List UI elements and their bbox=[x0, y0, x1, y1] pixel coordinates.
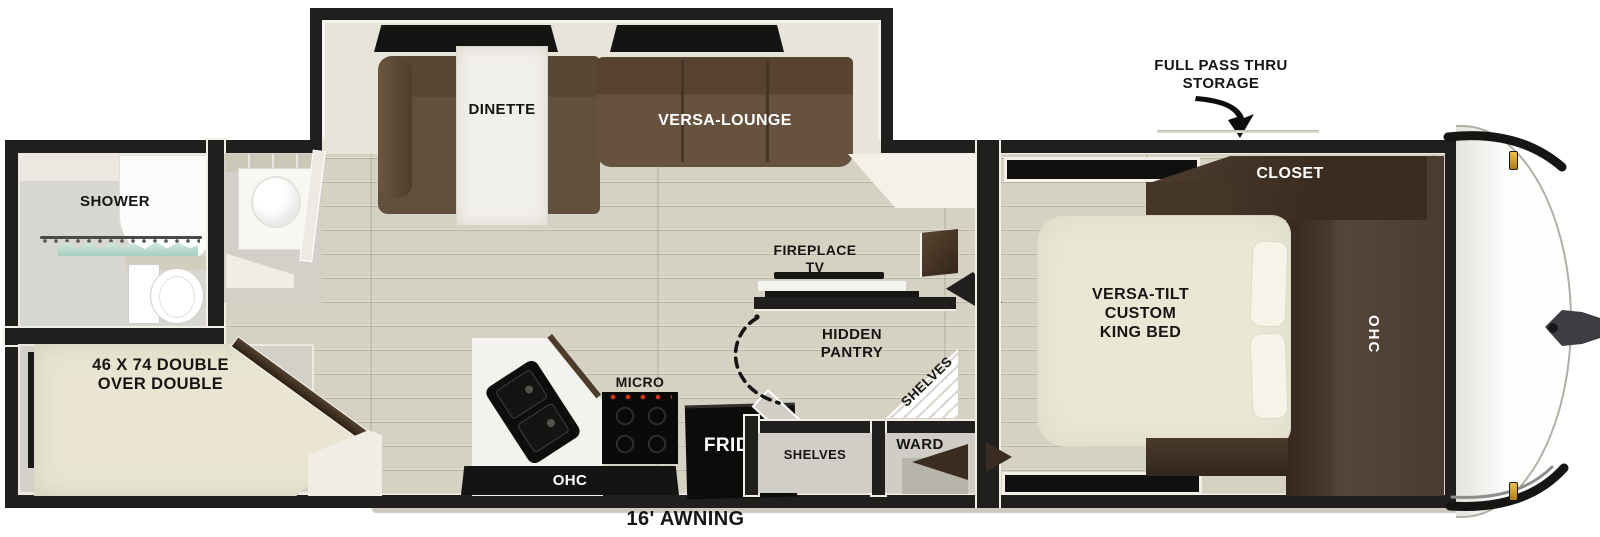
dinette-table bbox=[457, 47, 547, 225]
awning-label: 16' AWNING bbox=[558, 508, 813, 532]
lounge-cushion-seam bbox=[766, 60, 769, 162]
bathroom-wall-bottom bbox=[5, 328, 224, 345]
range-microwave bbox=[602, 392, 678, 464]
floorplan-canvas: SHOWER 46 X 74 DOUBLE OVER DOUBLE DINETT… bbox=[0, 0, 1600, 537]
kitchen-ohc-label: OHC bbox=[461, 472, 679, 490]
king-bed-label: VERSA-TILT CUSTOM KING BED bbox=[1058, 286, 1223, 343]
lower-shelves-label: SHELVES bbox=[758, 447, 872, 462]
burner-indicators bbox=[610, 394, 672, 400]
sink-bowl bbox=[251, 176, 301, 228]
marker-light-top bbox=[1509, 151, 1518, 170]
compartment-wall bbox=[745, 416, 758, 495]
closet-label: CLOSET bbox=[1210, 165, 1370, 184]
pillow bbox=[1251, 333, 1288, 418]
tv-niche-panel bbox=[920, 229, 958, 277]
toilet bbox=[150, 268, 204, 324]
pass-thru-door-line bbox=[1157, 130, 1319, 133]
wardrobe-label: WARD bbox=[885, 436, 955, 454]
micro-label: MICRO bbox=[598, 374, 682, 391]
shower-label: SHOWER bbox=[55, 193, 175, 211]
shelves-compartment bbox=[758, 433, 872, 493]
bedside-cabinet bbox=[1146, 182, 1234, 220]
dinette-armrest bbox=[378, 58, 412, 198]
versa-lounge-label: VERSA-LOUNGE bbox=[620, 112, 830, 131]
marker-light-bottom bbox=[1509, 482, 1518, 501]
slideout-window-right bbox=[610, 25, 784, 52]
fireplace-tv-label: FIREPLACE TV bbox=[760, 242, 870, 275]
dinette-label: DINETTE bbox=[457, 101, 547, 119]
bedroom-ohc-label: OHC bbox=[1362, 300, 1382, 370]
front-cap-trim bbox=[1440, 105, 1600, 535]
bedroom-wardrobe-column bbox=[1286, 200, 1332, 496]
tv bbox=[774, 272, 884, 279]
compartment-wall bbox=[745, 421, 978, 433]
compartment-wall bbox=[872, 421, 885, 495]
pass-thru-storage-label: FULL PASS THRU STORAGE bbox=[1126, 57, 1316, 92]
bunk-label: 46 X 74 DOUBLE OVER DOUBLE bbox=[48, 356, 273, 395]
pillow bbox=[1251, 241, 1288, 326]
bathroom-wall bbox=[208, 140, 224, 345]
lounge-cushion-seam bbox=[681, 60, 684, 162]
hidden-pantry-label: HIDDEN PANTRY bbox=[798, 326, 906, 361]
bed-foot-cabinet bbox=[1146, 438, 1288, 476]
